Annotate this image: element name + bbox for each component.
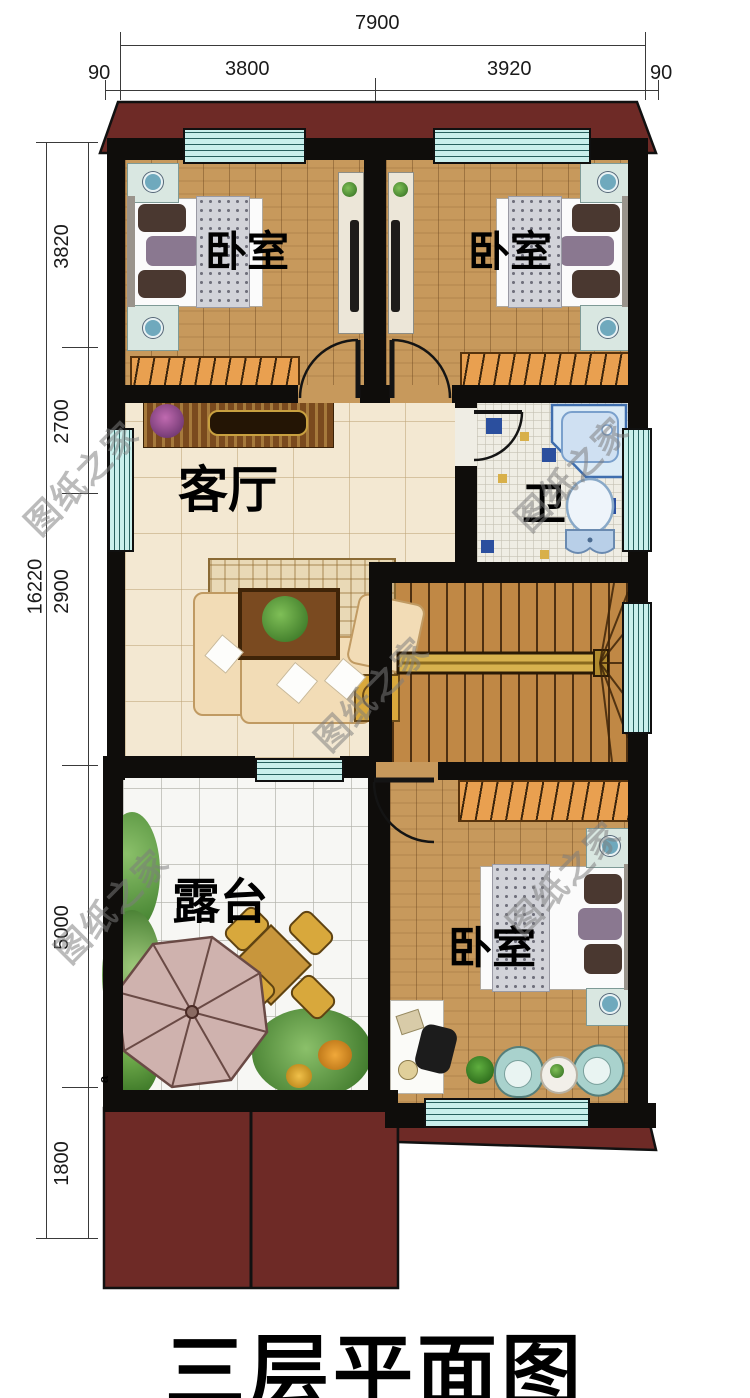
floorplan-sheet: 7900 90 3800 3920 90 3820 2700 2900 5000…	[0, 0, 750, 1398]
door-arc-bedroom-right	[392, 340, 450, 398]
room-label-terrace: 露台	[172, 862, 268, 932]
room-label-living: 客厅	[178, 450, 278, 522]
door-arc-bathroom	[474, 412, 522, 460]
plan-title: 三层平面图	[0, 1308, 750, 1398]
door-arc-bedroom-bottom	[374, 782, 434, 842]
room-label-bedroom-top-left: 卧室	[205, 218, 289, 279]
door-arc-bedroom-left	[300, 340, 358, 398]
room-label-bedroom-top-right: 卧室	[468, 218, 552, 279]
corner-letter: a	[96, 1076, 111, 1083]
